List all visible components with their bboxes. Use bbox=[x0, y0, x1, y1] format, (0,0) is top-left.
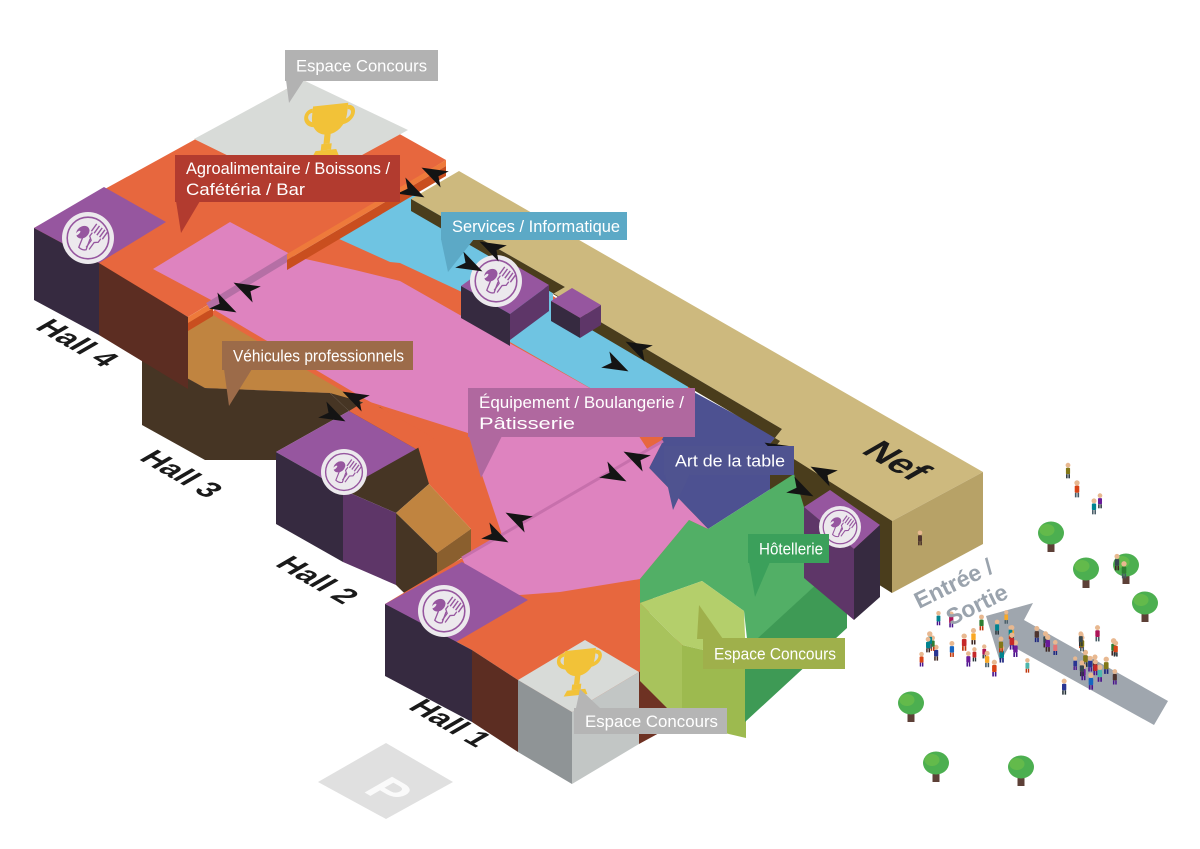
svg-text:Pâtisserie: Pâtisserie bbox=[479, 415, 575, 433]
svg-text:Équipement / Boulangerie /: Équipement / Boulangerie / bbox=[479, 393, 684, 412]
svg-text:Véhicules professionnels: Véhicules professionnels bbox=[233, 347, 404, 365]
svg-text:Espace Concours: Espace Concours bbox=[296, 57, 427, 75]
svg-text:Agroalimentaire / Boissons /: Agroalimentaire / Boissons / bbox=[186, 160, 390, 178]
svg-text:Espace Concours: Espace Concours bbox=[714, 645, 836, 663]
svg-text:Art de la table: Art de la table bbox=[675, 452, 785, 470]
svg-text:Hôtellerie: Hôtellerie bbox=[759, 540, 823, 558]
svg-text:Espace Concours: Espace Concours bbox=[585, 713, 718, 731]
svg-text:Services / Informatique: Services / Informatique bbox=[452, 218, 620, 236]
svg-text:Cafétéria / Bar: Cafétéria / Bar bbox=[186, 181, 306, 199]
